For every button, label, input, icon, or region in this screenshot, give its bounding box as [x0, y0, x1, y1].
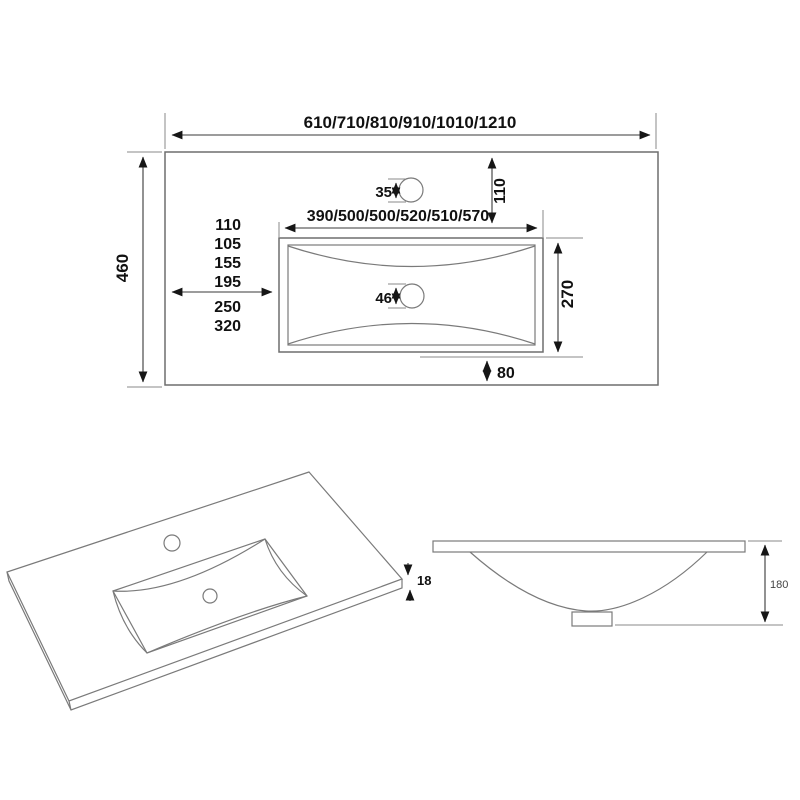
basin-slope-curve-bottom	[288, 324, 535, 345]
offset-label: 250	[214, 299, 241, 316]
counter-edge-profile	[433, 541, 745, 552]
isometric-view: 18	[7, 472, 431, 710]
drain-diameter-label: 46	[375, 290, 392, 307]
offset-label: 105	[214, 236, 241, 253]
basin-depth-dimension: 270	[546, 238, 583, 352]
faucet-diameter-label: 35	[375, 184, 392, 201]
bowl-profile-curve	[470, 552, 707, 611]
offset-label: 320	[214, 318, 241, 335]
plan-view: 610/710/810/910/1010/1210 460 110 105 15…	[113, 113, 658, 387]
thickness-label: 18	[417, 573, 431, 588]
front-offset-dimension: 80	[420, 357, 583, 382]
height-label: 180	[770, 579, 788, 591]
overall-width-dimension: 610/710/810/910/1010/1210	[165, 113, 656, 149]
basin-width-dimension: 390/500/500/520/510/570	[279, 208, 543, 237]
offset-label: 155	[214, 255, 241, 272]
offset-label: 195	[214, 274, 241, 291]
basin-inner-rim	[288, 245, 535, 345]
drain-fitting	[572, 612, 612, 626]
drain-hole: 46	[375, 284, 424, 308]
technical-drawing-page: 610/710/810/910/1010/1210 460 110 105 15…	[0, 0, 800, 800]
basin-rim-iso	[113, 539, 307, 653]
basin-width-label: 390/500/500/520/510/570	[307, 208, 490, 225]
slab-top-face	[7, 472, 402, 701]
faucet-offset-dimension: 110	[492, 158, 509, 223]
basin-plan	[279, 238, 543, 352]
overall-depth-dimension: 460	[113, 152, 162, 387]
front-offset-label: 80	[497, 365, 515, 382]
basin-slope-curve-top	[288, 246, 535, 267]
faucet-offset-label: 110	[492, 178, 509, 204]
overall-width-label: 610/710/810/910/1010/1210	[304, 113, 517, 132]
offset-label: 110	[215, 217, 241, 234]
drain-hole-iso	[203, 589, 217, 603]
basin-technical-drawing: 610/710/810/910/1010/1210 460 110 105 15…	[0, 0, 800, 800]
basin-depth-label: 270	[558, 280, 577, 308]
faucet-hole: 35	[375, 178, 423, 202]
drain-hole-circle	[400, 284, 424, 308]
height-dimension: 180	[748, 541, 788, 622]
overall-depth-label: 460	[113, 254, 132, 282]
faucet-hole-circle	[399, 178, 423, 202]
left-offset-dimensions: 110 105 155 195 250 320	[172, 217, 272, 335]
faucet-hole-iso	[164, 535, 180, 551]
thickness-dimension: 18	[408, 563, 431, 601]
side-view: 180	[433, 541, 788, 626]
